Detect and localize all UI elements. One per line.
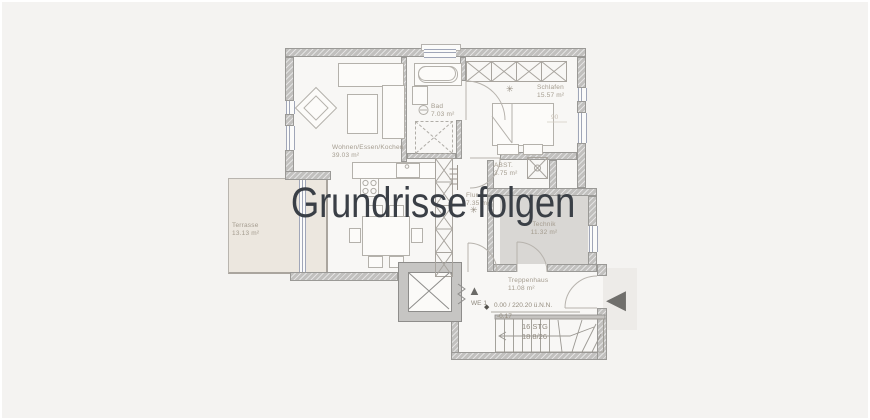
bathtub [414,63,462,86]
wall-segment [597,308,607,360]
room-label-bad: Bad 7.03 m² [431,103,454,119]
stairs-count-label: 16 STG [522,323,548,332]
room-label-abst: ABST. 3.75 m² [494,162,517,178]
room-area: 3.75 m² [494,170,517,178]
room-area: 39.03 m² [332,152,404,160]
wall-segment [451,352,607,360]
window [589,226,598,252]
window [578,88,587,101]
wall-segment [547,264,597,272]
elevator-car [408,272,452,312]
chair [411,228,423,243]
coffee-table [347,94,378,134]
stairs-ratio-label: 18.8/26 [522,333,547,342]
wall-segment [285,114,294,126]
room-name: Schlafen [537,84,564,92]
wall-segment [597,264,607,276]
room-label-schlafen: Schlafen 15.57 m² [537,84,564,100]
bed-dimension-label: 90 [551,114,558,121]
room-name: Treppenhaus [508,277,548,285]
kitchen-counter [352,162,436,179]
wall-segment [451,320,459,354]
sofa [338,63,404,87]
sofa [382,85,405,139]
room-label-treppenhaus: Treppenhaus 11.08 m² [508,277,548,293]
room-area: 11.32 m² [514,229,574,237]
wall-segment [577,101,586,113]
elevation-label: 0.00 / 220.20 ü.N.N. [494,302,552,309]
nightstand [523,144,543,155]
room-area: 11.08 m² [508,285,548,293]
unit-label: WE 1 [464,300,494,307]
wall-segment [285,57,294,101]
room-name: Bad [431,103,454,111]
chair [349,228,361,243]
entry-direction-arrow-icon: ◀ [606,284,626,314]
wall-segment [577,57,586,88]
wall-segment [493,264,517,272]
wall-segment [456,120,462,159]
window [578,113,587,143]
unit-entry-arrow-icon: ▲ [468,284,481,297]
room-label-wohnen: Wohnen/Essen/Kochen 39.03 m² [332,144,404,160]
window [286,126,295,150]
bed [492,103,554,146]
window [424,49,456,58]
overlay-message: Grundrisse folgen [212,180,654,228]
elevation-offset-label: -0.17 [497,313,512,320]
window [286,101,295,114]
room-area: 13.13 m² [232,230,259,238]
room-name: Wohnen/Essen/Kochen [332,144,404,152]
wall-segment [290,272,398,281]
room-name: ABST. [494,162,517,170]
room-area: 7.03 m² [431,111,454,119]
nightstand [497,144,519,155]
washbasin [412,86,428,105]
chair [368,256,383,268]
wall-segment [407,153,456,159]
ceiling-light-icon: ✳ [506,85,514,94]
level-marker-icon: ◆ [484,304,489,311]
room-area: 15.57 m² [537,92,564,100]
kitchen-sink [396,163,420,178]
floor-plan-canvas: Wohnen/Essen/Kochen 39.03 m² Bad 7.03 m²… [0,0,870,420]
